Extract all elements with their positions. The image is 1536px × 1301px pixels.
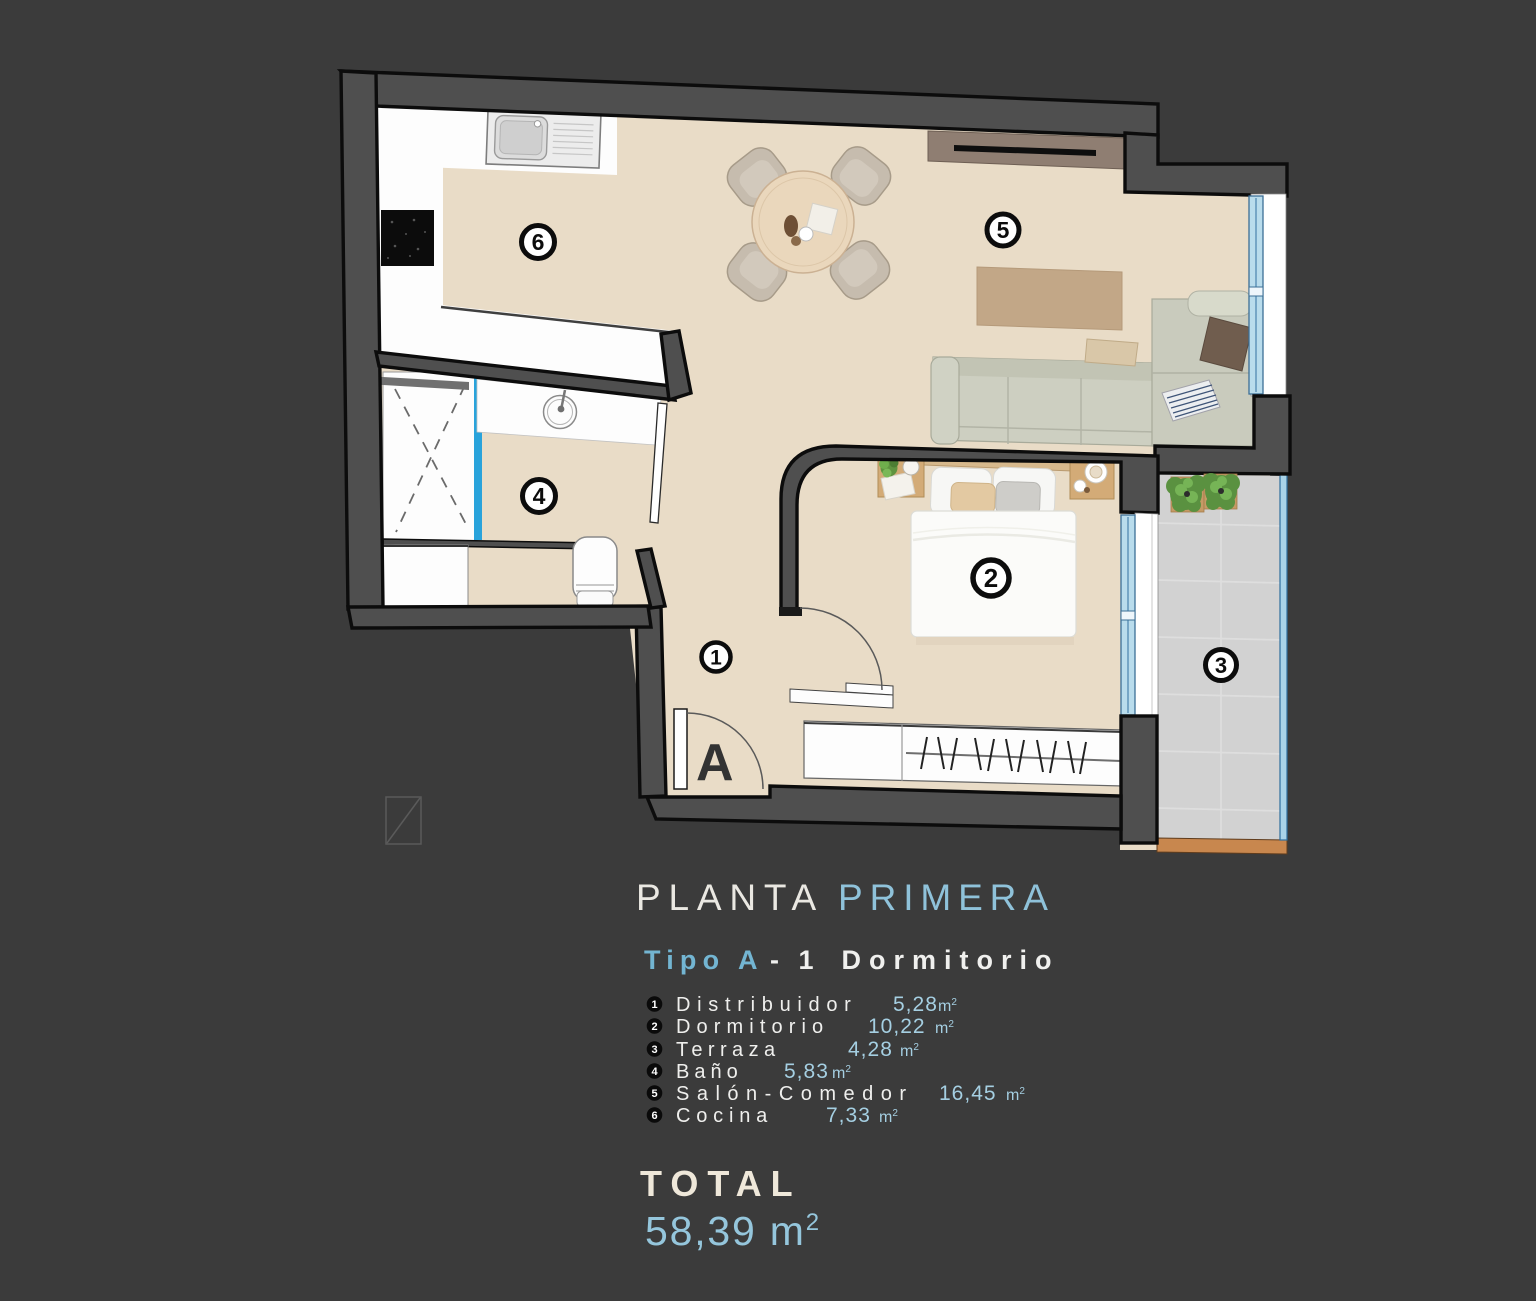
svg-text:5,28: 5,28 xyxy=(893,993,938,1016)
svg-text:6: 6 xyxy=(651,1110,657,1122)
svg-text:TOTAL: TOTAL xyxy=(640,1163,802,1204)
svg-text:5: 5 xyxy=(997,217,1010,243)
svg-text:4: 4 xyxy=(651,1066,658,1078)
svg-text:PLANTA: PLANTA xyxy=(636,877,824,918)
svg-text:5,83: 5,83 xyxy=(784,1060,829,1083)
svg-text:Tipo A: Tipo A xyxy=(644,945,764,975)
svg-text:Terraza: Terraza xyxy=(676,1039,781,1061)
svg-text:Dormitorio: Dormitorio xyxy=(676,1016,829,1038)
svg-text:58,39 m2: 58,39 m2 xyxy=(645,1208,821,1254)
svg-text:A: A xyxy=(696,734,734,792)
svg-text:Baño: Baño xyxy=(676,1061,743,1083)
svg-text:5: 5 xyxy=(651,1088,657,1100)
svg-text:Dormitorio: Dormitorio xyxy=(842,945,1060,975)
svg-text:1: 1 xyxy=(651,999,657,1011)
svg-text:Salón-Comedor: Salón-Comedor xyxy=(676,1083,914,1105)
svg-text:Distribuidor: Distribuidor xyxy=(676,994,858,1016)
svg-text:6: 6 xyxy=(532,229,545,255)
svg-text:Cocina: Cocina xyxy=(676,1105,773,1127)
svg-text:2: 2 xyxy=(651,1021,657,1033)
svg-text:- 1: - 1 xyxy=(770,945,820,975)
svg-text:7,33: 7,33 xyxy=(826,1104,871,1127)
svg-text:PRIMERA: PRIMERA xyxy=(838,877,1055,918)
svg-text:2: 2 xyxy=(984,563,998,593)
svg-text:16,45: 16,45 xyxy=(939,1082,997,1105)
svg-text:4,28: 4,28 xyxy=(848,1038,893,1061)
svg-text:10,22: 10,22 xyxy=(868,1015,926,1038)
svg-text:1: 1 xyxy=(710,647,722,670)
svg-text:3: 3 xyxy=(1215,653,1227,678)
svg-text:4: 4 xyxy=(533,483,546,509)
svg-text:3: 3 xyxy=(651,1044,657,1056)
